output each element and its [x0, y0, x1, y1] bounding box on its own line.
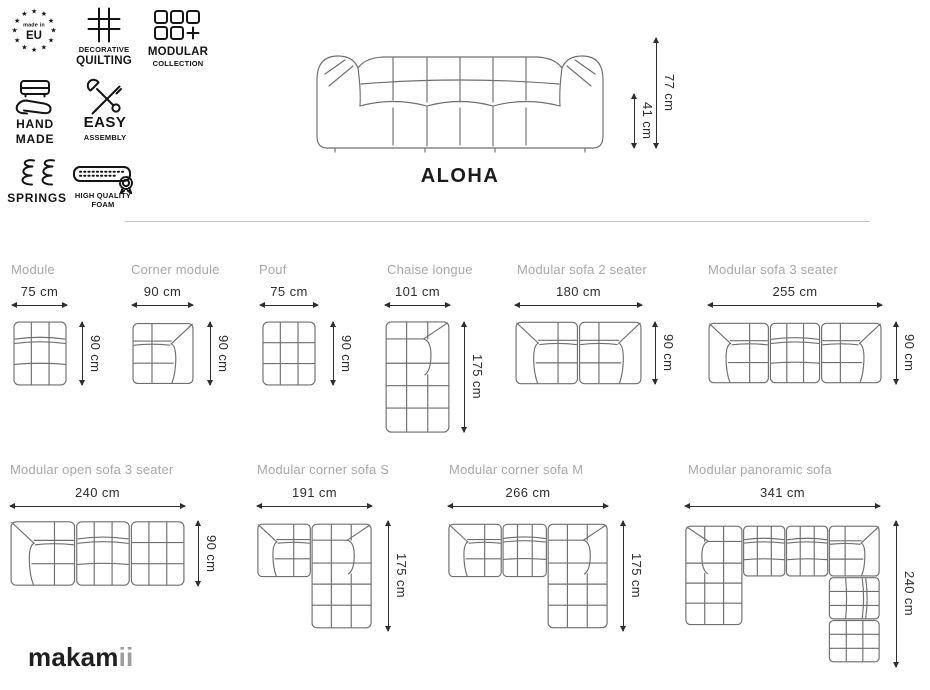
- badge-decorative-quilting-label: DECORATIVE QUILTING: [62, 45, 146, 69]
- depth-dimension: 175 cm: [629, 520, 644, 632]
- high-quality-foam-icon: [72, 162, 138, 194]
- brand-logo-suffix: ii: [119, 642, 134, 672]
- depth-arrow: [464, 322, 465, 432]
- depth-dimension: 90 cm: [88, 321, 103, 386]
- width-arrow: [448, 506, 608, 507]
- depth-dimension: 90 cm: [902, 321, 917, 385]
- depth-arrow: [388, 521, 389, 631]
- depth-arrow: [333, 322, 334, 385]
- width-dimension: 191 cm: [257, 485, 372, 500]
- seat-height-arrow: [634, 94, 635, 148]
- svg-text:★: ★: [41, 43, 47, 51]
- product-drawing: [685, 520, 880, 668]
- svg-text:★: ★: [48, 17, 54, 25]
- product-drawing: [708, 321, 882, 385]
- svg-text:★: ★: [14, 36, 20, 44]
- product-drawing: [448, 520, 608, 632]
- width-arrow: [515, 305, 642, 306]
- svg-text:★: ★: [21, 10, 27, 18]
- svg-text:★: ★: [48, 36, 54, 44]
- badge-high-quality-foam-label: HIGH QUALITY FOAM: [70, 191, 136, 210]
- product-name: Module: [11, 262, 55, 277]
- svg-text:★: ★: [31, 8, 37, 15]
- brand-logo-main: makam: [28, 642, 119, 672]
- modular-collection-icon: [153, 9, 203, 43]
- product-name: Modular sofa 3 seater: [708, 262, 838, 277]
- depth-arrow: [210, 322, 211, 385]
- width-arrow: [708, 305, 882, 306]
- svg-text:★: ★: [14, 17, 20, 25]
- depth-arrow: [82, 322, 83, 385]
- width-dimension: 75 cm: [260, 284, 318, 299]
- product-drawing: [10, 520, 185, 587]
- depth-arrow: [896, 521, 897, 667]
- product-drawing: [257, 520, 372, 632]
- depth-arrow: [896, 322, 897, 384]
- product-drawing: [132, 321, 194, 386]
- depth-dimension: 90 cm: [661, 321, 676, 385]
- width-dimension: 180 cm: [515, 284, 642, 299]
- hero-sofa-drawing: [305, 28, 615, 153]
- product-drawing: [260, 321, 318, 386]
- depth-arrow: [198, 521, 199, 586]
- width-dimension: 255 cm: [708, 284, 882, 299]
- product-drawing: [385, 321, 450, 433]
- section-divider: [125, 221, 870, 222]
- width-arrow: [385, 305, 450, 306]
- width-arrow: [260, 305, 318, 306]
- width-dimension: 240 cm: [10, 485, 185, 500]
- width-dimension: 341 cm: [685, 485, 880, 500]
- svg-text:★: ★: [31, 46, 37, 54]
- depth-dimension: 90 cm: [339, 321, 354, 386]
- depth-dimension: 90 cm: [204, 520, 219, 587]
- hand-made-icon: [14, 79, 56, 119]
- svg-text:EU: EU: [26, 30, 42, 42]
- width-dimension: 90 cm: [132, 284, 193, 299]
- width-dimension: 101 cm: [385, 284, 450, 299]
- product-name: Corner module: [131, 262, 220, 277]
- depth-dimension: 240 cm: [902, 520, 917, 668]
- total-height-dimension: 77 cm: [662, 38, 677, 148]
- product-name: Modular panoramic sofa: [688, 462, 832, 477]
- width-dimension: 266 cm: [448, 485, 608, 500]
- product-name: Modular corner sofa M: [449, 462, 583, 477]
- depth-dimension: 90 cm: [216, 321, 231, 386]
- depth-dimension: 175 cm: [394, 520, 409, 632]
- badge-modular-collection-label: MODULAR COLLECTION: [136, 45, 220, 69]
- width-arrow: [12, 305, 67, 306]
- badge-easy-assembly-label: EASY ASSEMBLY: [74, 114, 136, 142]
- quilting-grid-icon: [87, 7, 121, 43]
- product-name: Modular corner sofa S: [257, 462, 389, 477]
- depth-arrow: [655, 322, 656, 384]
- badge-modular-collection: [153, 9, 203, 48]
- badge-decorative-quilting: [87, 7, 121, 48]
- product-drawing: [515, 321, 642, 385]
- product-name: Chaise longue: [387, 262, 473, 277]
- spec-sheet: ★★ ★★ ★★ ★★ ★★ ★★ made in EU DECORATIVE …: [0, 0, 930, 690]
- made-in-eu-icon: ★★ ★★ ★★ ★★ ★★ ★★ made in EU: [11, 8, 57, 54]
- brand-logo: makamii: [28, 642, 133, 673]
- badge-hand-made-label: HAND MADE: [4, 117, 66, 147]
- svg-text:★: ★: [50, 27, 56, 35]
- svg-text:★: ★: [41, 10, 47, 18]
- total-height-arrow: [656, 38, 657, 148]
- badge-made-in-eu: ★★ ★★ ★★ ★★ ★★ ★★ made in EU: [11, 8, 57, 59]
- width-arrow: [10, 506, 185, 507]
- depth-arrow: [623, 521, 624, 631]
- collection-title: ALOHA: [350, 165, 570, 188]
- badge-springs-label: SPRINGS: [4, 191, 70, 206]
- easy-assembly-icon: [86, 78, 124, 116]
- product-drawing: [12, 321, 68, 386]
- badge-springs: [17, 157, 57, 193]
- product-name: Modular sofa 2 seater: [517, 262, 647, 277]
- width-arrow: [257, 506, 372, 507]
- width-arrow: [685, 506, 880, 507]
- svg-text:made in: made in: [23, 23, 45, 29]
- svg-text:★: ★: [12, 27, 18, 35]
- springs-icon: [17, 157, 57, 188]
- svg-text:★: ★: [21, 43, 27, 51]
- width-dimension: 75 cm: [12, 284, 67, 299]
- seat-height-dimension: 41 cm: [640, 94, 655, 148]
- width-arrow: [132, 305, 193, 306]
- depth-dimension: 175 cm: [470, 321, 485, 433]
- product-name: Pouf: [259, 262, 287, 277]
- product-name: Modular open sofa 3 seater: [10, 462, 173, 477]
